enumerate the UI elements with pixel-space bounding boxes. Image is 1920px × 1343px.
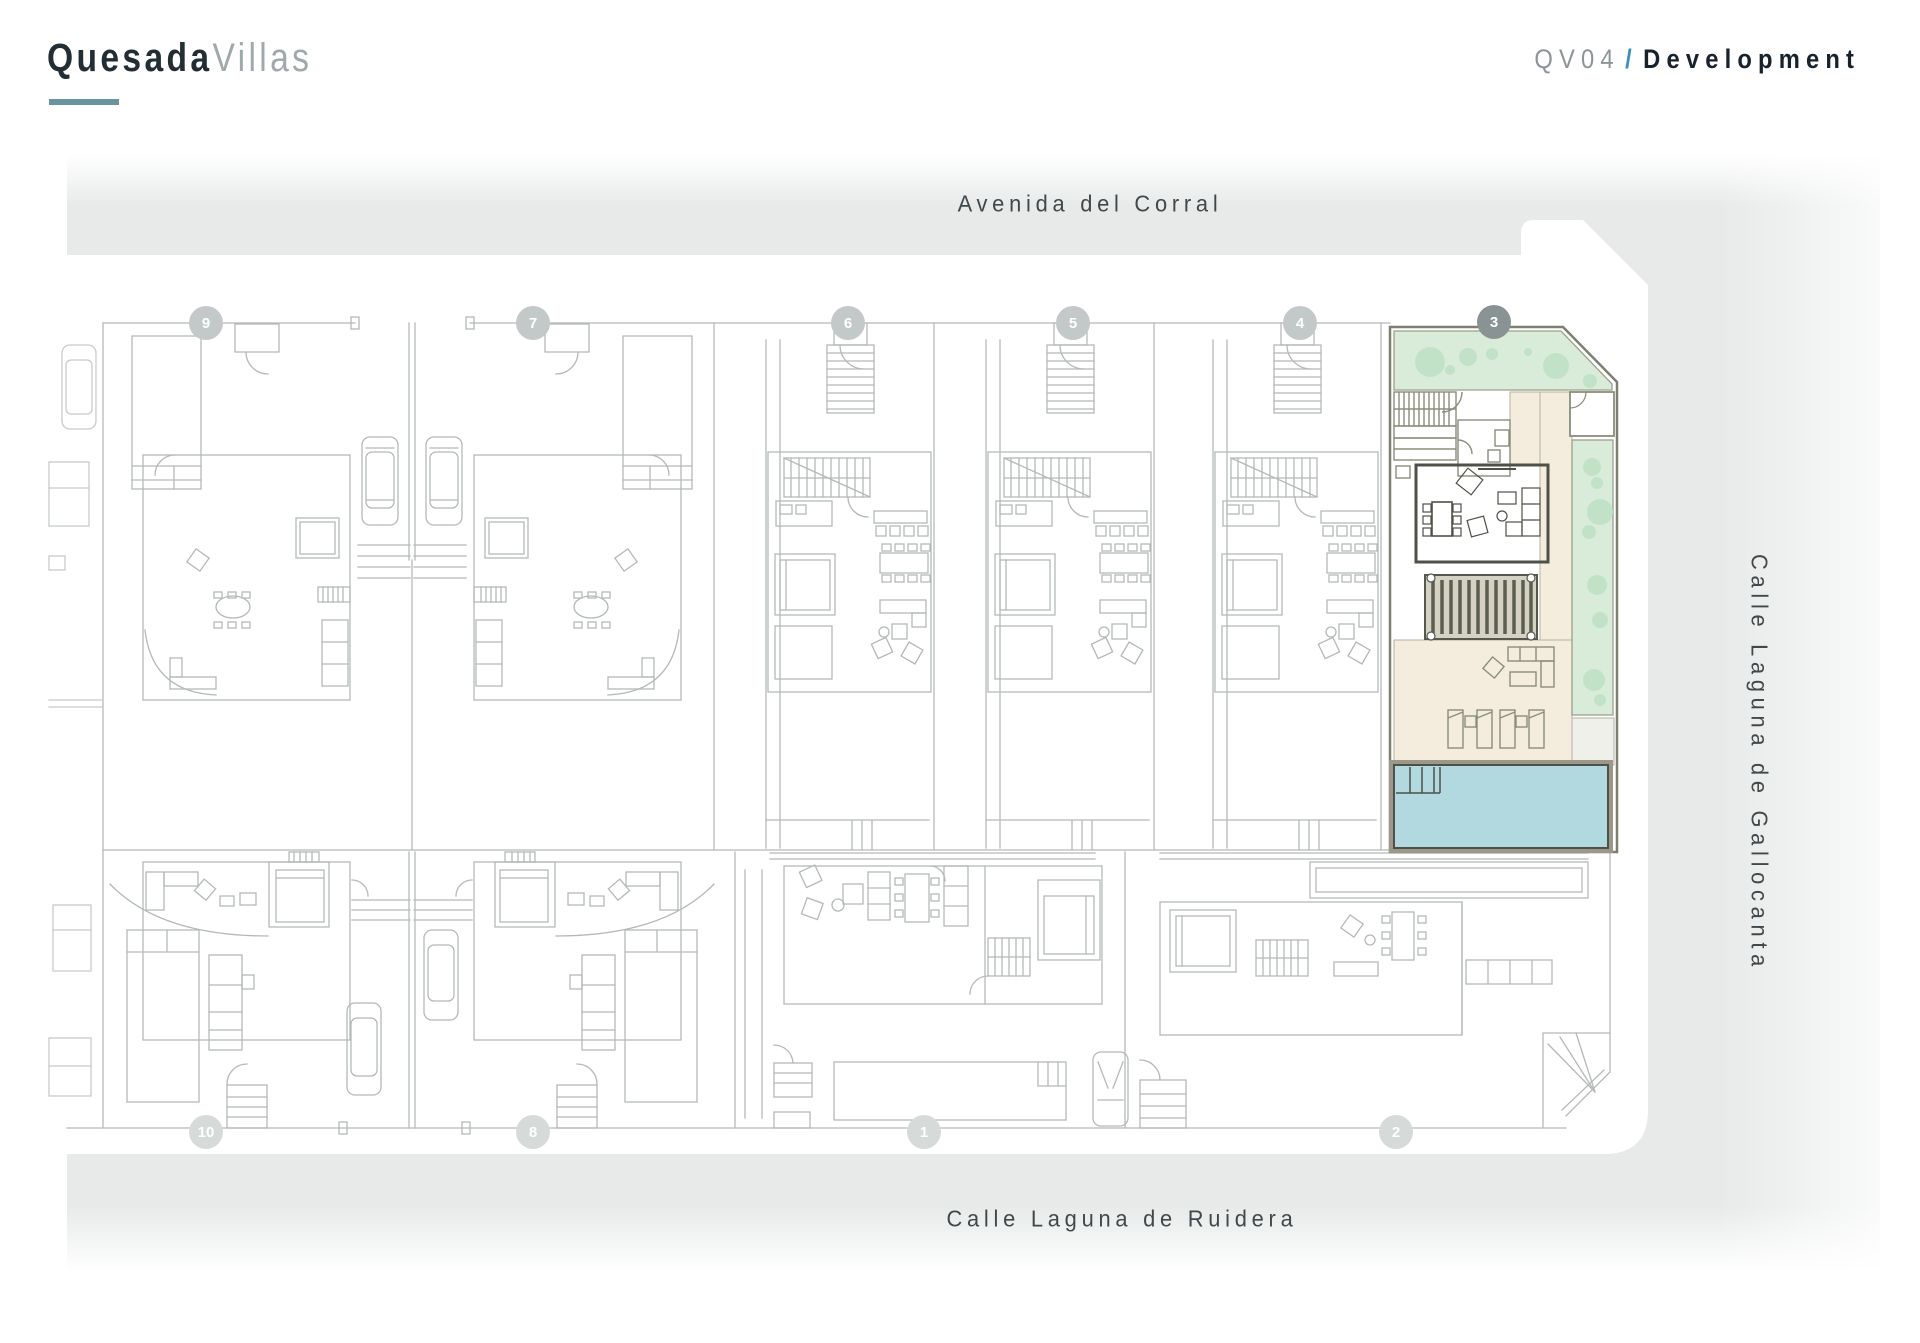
street-label-top: Avenida del Corral: [958, 191, 1223, 218]
brand-underline: [49, 99, 119, 105]
plot-6: [766, 323, 934, 850]
plot-badge-3-highlighted[interactable]: 3: [1477, 305, 1511, 339]
plot-badge-6[interactable]: 6: [831, 306, 865, 340]
plot-5: [986, 323, 1154, 850]
plot-badge-8[interactable]: 8: [516, 1115, 550, 1149]
plot-4: [1213, 323, 1381, 850]
plot-badge-4[interactable]: 4: [1283, 306, 1317, 340]
plot-badge-1[interactable]: 1: [907, 1115, 941, 1149]
page: QuesadaVillas QV04/Development Avenida d…: [0, 0, 1920, 1343]
plot-badge-9[interactable]: 9: [189, 306, 223, 340]
plot-badge-2[interactable]: 2: [1379, 1115, 1413, 1149]
brand-primary: Quesada: [47, 36, 212, 80]
plot-pair-9-7: [132, 323, 714, 850]
plot-2: [1125, 852, 1610, 1128]
plot-1: [745, 853, 1128, 1128]
street-label-bottom: Calle Laguna de Ruidera: [947, 1206, 1298, 1233]
slash-separator: /: [1620, 44, 1643, 74]
plot-badge-5[interactable]: 5: [1056, 306, 1090, 340]
project-label: Development: [1643, 44, 1860, 74]
brand-secondary: Villas: [212, 36, 312, 80]
project-code: QV04: [1534, 44, 1619, 74]
street-label-right: Calle Laguna de Gallocanta: [1746, 554, 1773, 972]
plots-linework: [49, 317, 1610, 1134]
left-neighbor-partials: [49, 345, 103, 1096]
brand-logo: QuesadaVillas: [47, 36, 312, 81]
plot-pair-10-8: [110, 852, 735, 1128]
plot-badge-7[interactable]: 7: [516, 306, 550, 340]
property-lines: [67, 317, 1566, 1134]
project-title: QV04/Development: [1534, 44, 1860, 75]
plot-badge-10[interactable]: 10: [189, 1115, 223, 1149]
plot-3-highlighted: [1390, 327, 1617, 852]
